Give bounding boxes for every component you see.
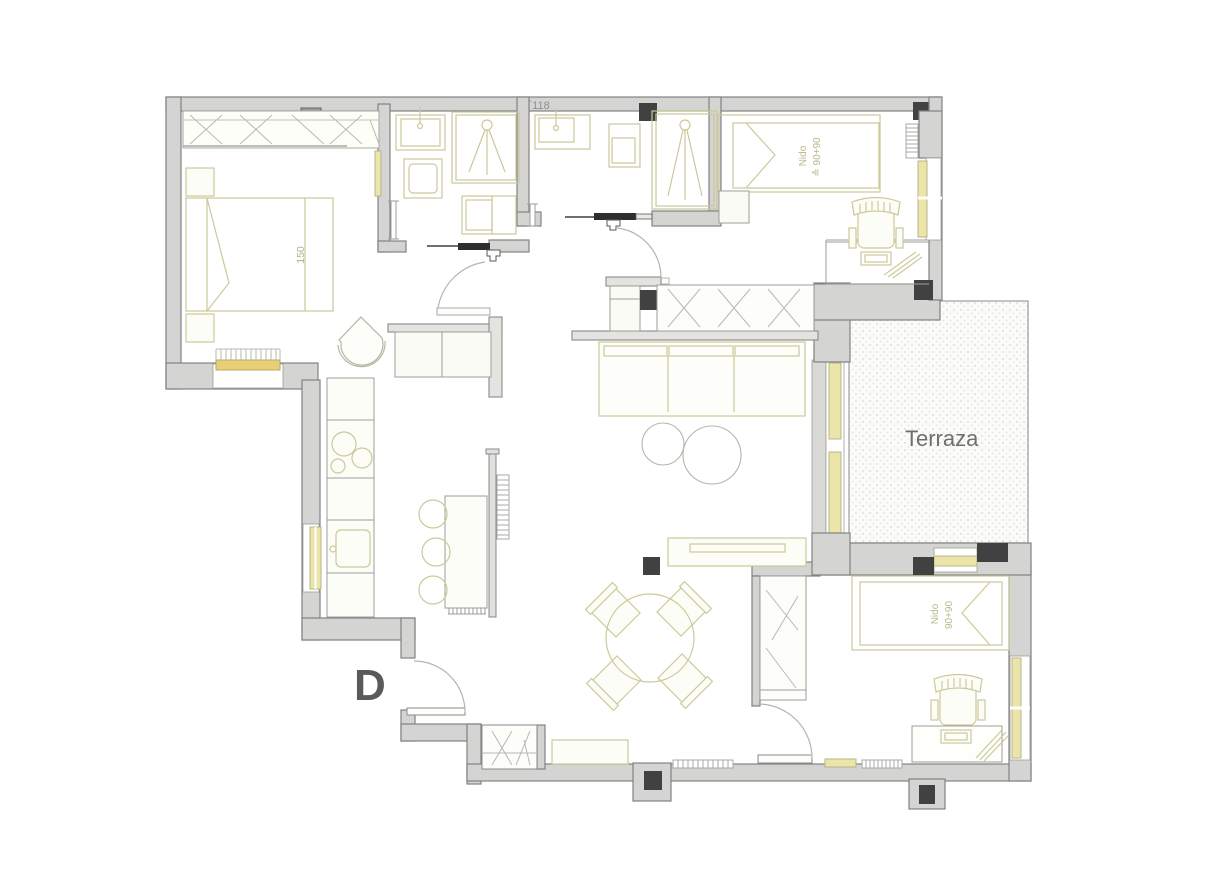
svg-text:D: D: [354, 661, 386, 710]
svg-text:Terraza: Terraza: [905, 426, 979, 451]
svg-text:⌜118: ⌜118: [527, 100, 550, 112]
svg-text:≙ 90+90: ≙ 90+90: [811, 137, 823, 177]
svg-text:Nido: Nido: [798, 145, 809, 166]
svg-text:150: 150: [295, 246, 307, 264]
svg-text:90+90: 90+90: [944, 601, 955, 630]
svg-text:Nido: Nido: [930, 603, 941, 624]
